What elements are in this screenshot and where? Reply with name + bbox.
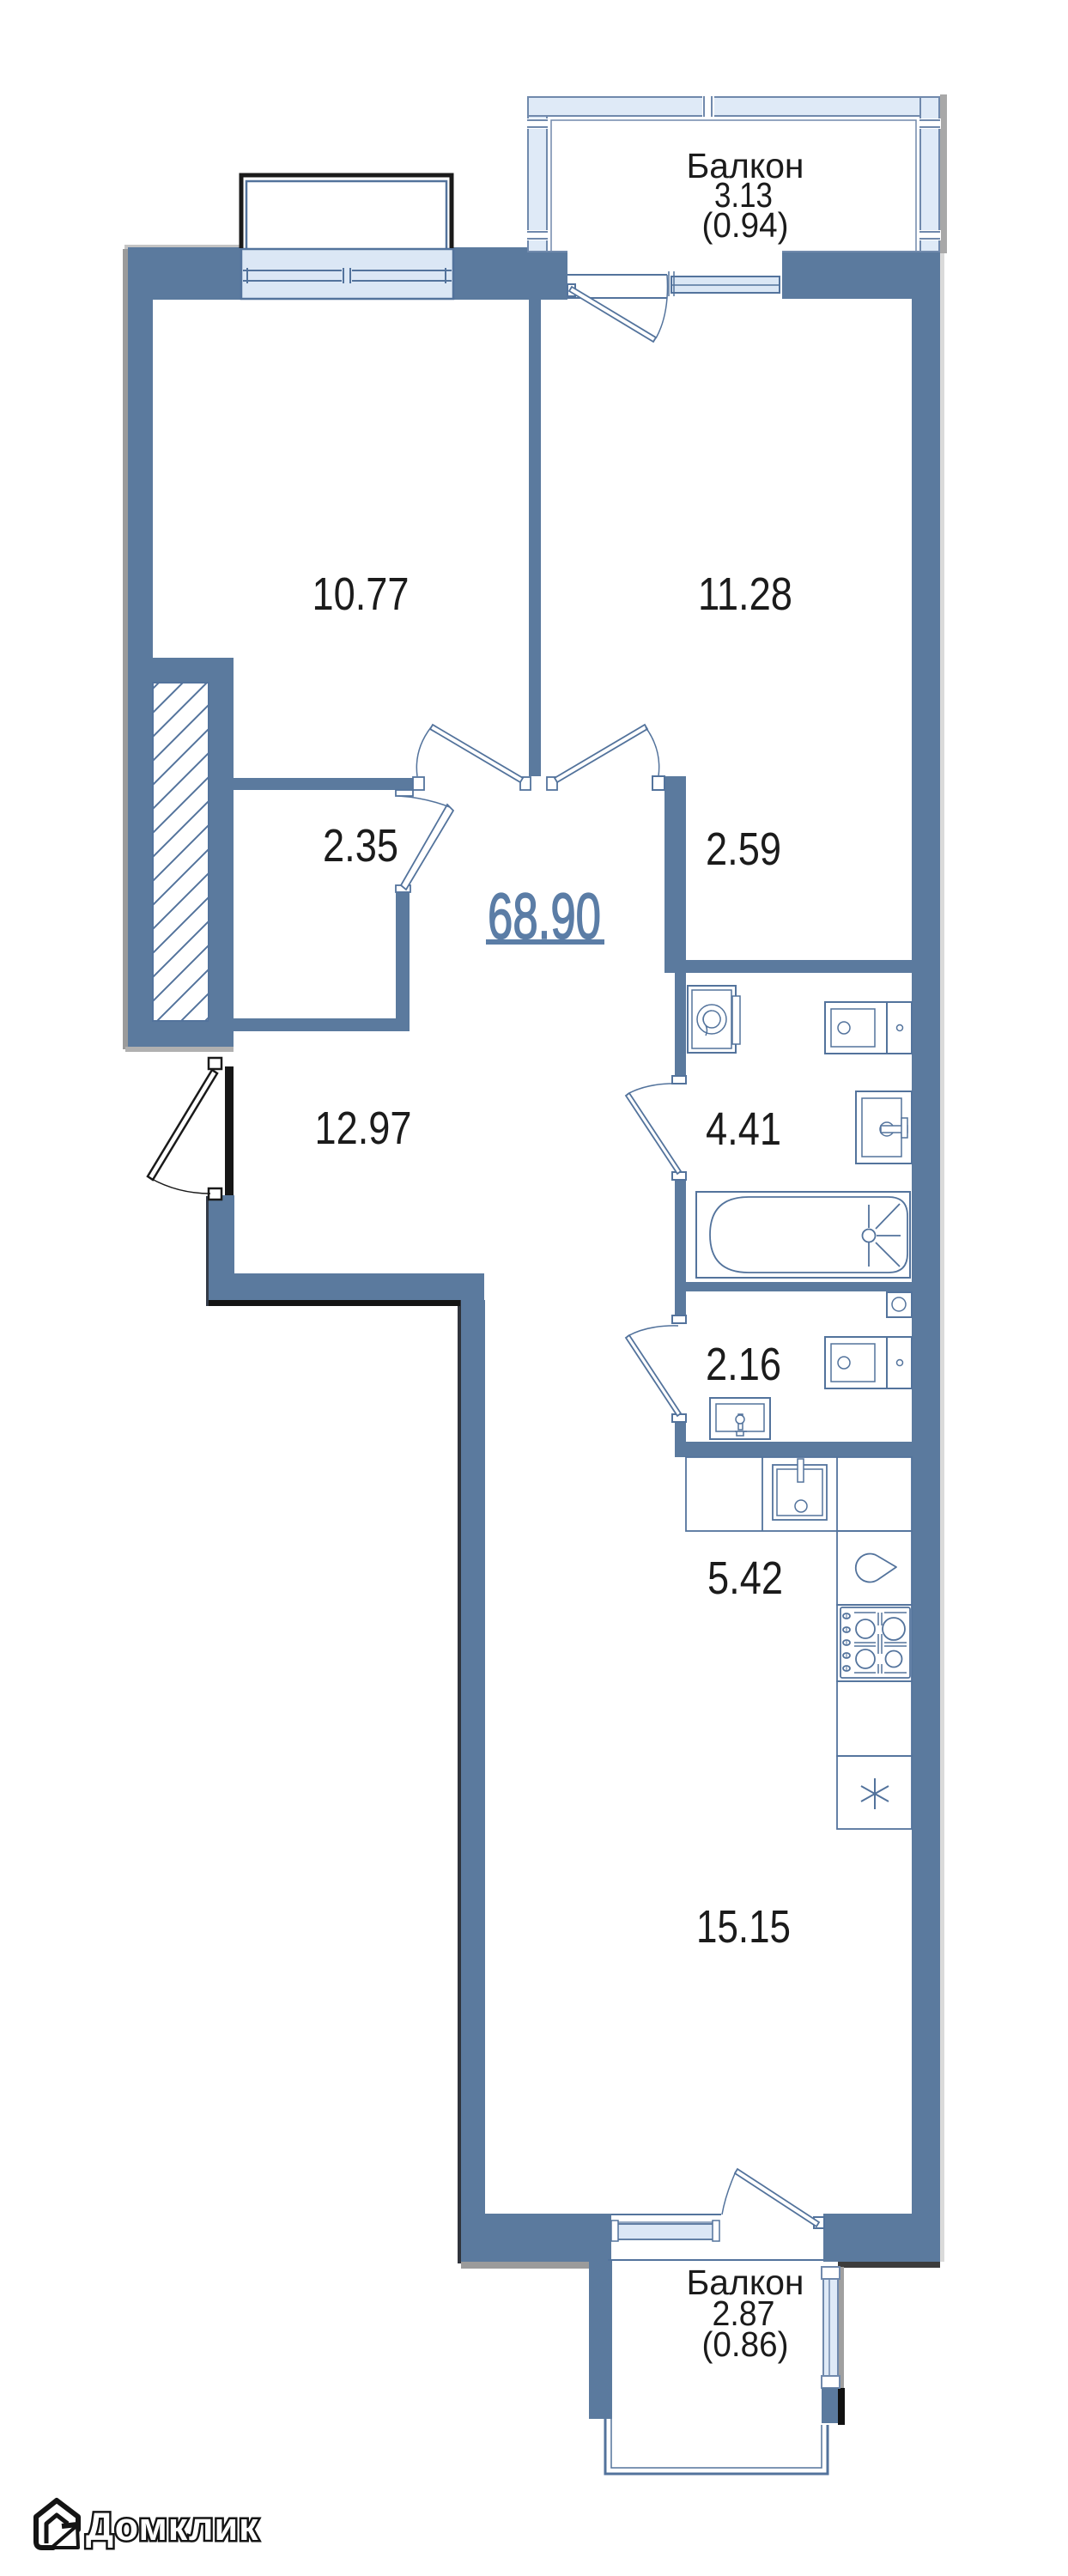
svg-text:15.15: 15.15 [696, 1901, 791, 1953]
svg-text:(0.86): (0.86) [702, 2324, 789, 2364]
svg-text:10.77: 10.77 [313, 568, 410, 620]
svg-text:Домклик: Домклик [86, 2505, 259, 2549]
svg-text:11.28: 11.28 [698, 568, 792, 620]
svg-text:12.97: 12.97 [315, 1103, 412, 1154]
svg-text:2.59: 2.59 [706, 823, 781, 875]
svg-text:2.35: 2.35 [323, 820, 398, 872]
svg-text:(0.94): (0.94) [702, 205, 789, 245]
svg-text:2.16: 2.16 [706, 1339, 781, 1390]
svg-text:5.42: 5.42 [707, 1552, 783, 1604]
svg-text:4.41: 4.41 [706, 1103, 781, 1155]
